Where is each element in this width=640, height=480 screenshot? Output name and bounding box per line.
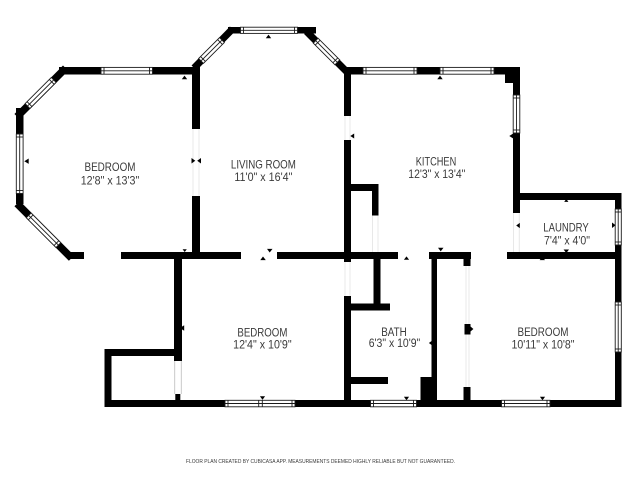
svg-text:FLOOR PLAN CREATED BY CUBICASA: FLOOR PLAN CREATED BY CUBICASA APP. MEAS… <box>186 459 455 465</box>
svg-text:7'4" x 4'0": 7'4" x 4'0" <box>544 234 590 248</box>
svg-text:12'3" x 13'4": 12'3" x 13'4" <box>408 167 465 181</box>
svg-text:11'0" x 16'4": 11'0" x 16'4" <box>234 170 292 184</box>
svg-text:6'3" x 10'9": 6'3" x 10'9" <box>369 336 421 350</box>
svg-text:12'4" x 10'9": 12'4" x 10'9" <box>233 338 292 352</box>
svg-text:LAUNDRY: LAUNDRY <box>543 220 589 234</box>
svg-text:12'8" x 13'3": 12'8" x 13'3" <box>81 174 140 188</box>
svg-text:10'11" x 10'8": 10'11" x 10'8" <box>512 338 575 352</box>
svg-text:BEDROOM: BEDROOM <box>85 160 136 174</box>
